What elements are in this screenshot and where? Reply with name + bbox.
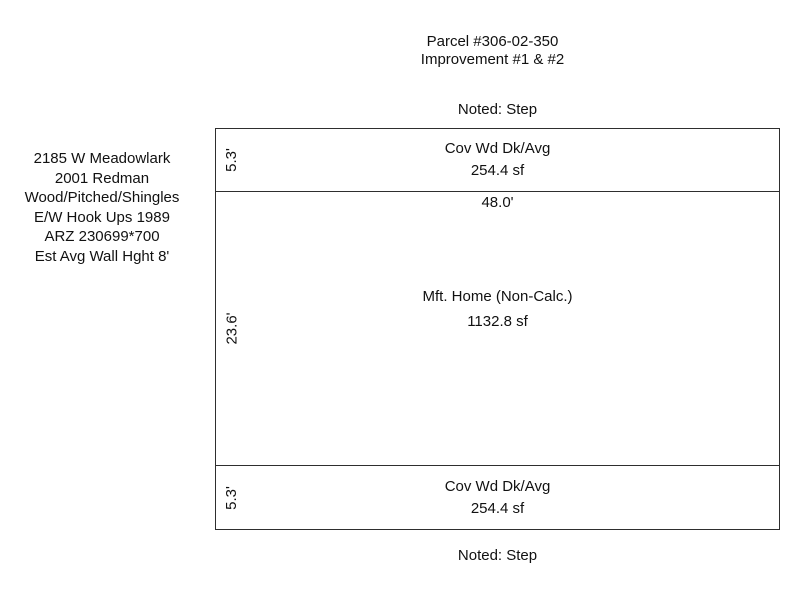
section-bottom-deck: 5.3' Cov Wd Dk/Avg 254.4 sf xyxy=(216,466,779,529)
dim-bottom-deck-depth: 5.3' xyxy=(216,466,248,529)
note-top: Noted: Step xyxy=(215,101,780,118)
main-home-label-block: Mft. Home (Non-Calc.) 1132.8 sf xyxy=(216,284,779,334)
info-line-address: 2185 W Meadowlark xyxy=(4,149,200,169)
bottom-deck-area: 254.4 sf xyxy=(471,498,524,520)
info-line-year-make: 2001 Redman xyxy=(4,169,200,189)
main-home-area: 1132.8 sf xyxy=(216,309,779,334)
section-main-home: 48.0' 23.6' Mft. Home (Non-Calc.) 1132.8… xyxy=(216,192,779,466)
parcel-sketch-page: Parcel #306-02-350 Improvement #1 & #2 N… xyxy=(0,0,800,600)
bottom-deck-label: Cov Wd Dk/Avg xyxy=(445,476,551,498)
info-line-construction: Wood/Pitched/Shingles xyxy=(4,188,200,208)
section-top-deck: 5.3' Cov Wd Dk/Avg 254.4 sf xyxy=(216,129,779,192)
top-deck-label: Cov Wd Dk/Avg xyxy=(445,138,551,160)
parcel-number: Parcel #306-02-350 xyxy=(210,33,775,51)
dim-top-deck-depth: 5.3' xyxy=(216,129,248,191)
dim-bottom-deck-depth-value: 5.3' xyxy=(221,486,243,510)
property-info-block: 2185 W Meadowlark 2001 Redman Wood/Pitch… xyxy=(4,149,200,266)
top-deck-area: 254.4 sf xyxy=(471,160,524,182)
page-title: Parcel #306-02-350 Improvement #1 & #2 xyxy=(210,33,775,69)
info-line-hookups: E/W Hook Ups 1989 xyxy=(4,208,200,228)
info-line-wall-height: Est Avg Wall Hght 8' xyxy=(4,247,200,267)
dim-main-width: 48.0' xyxy=(216,194,779,211)
info-line-serial: ARZ 230699*700 xyxy=(4,227,200,247)
main-home-label: Mft. Home (Non-Calc.) xyxy=(216,284,779,309)
improvement-label: Improvement #1 & #2 xyxy=(210,51,775,69)
sketch-outline: 5.3' Cov Wd Dk/Avg 254.4 sf 48.0' 23.6' … xyxy=(215,128,780,530)
dim-top-deck-depth-value: 5.3' xyxy=(221,148,243,172)
note-bottom: Noted: Step xyxy=(215,547,780,564)
